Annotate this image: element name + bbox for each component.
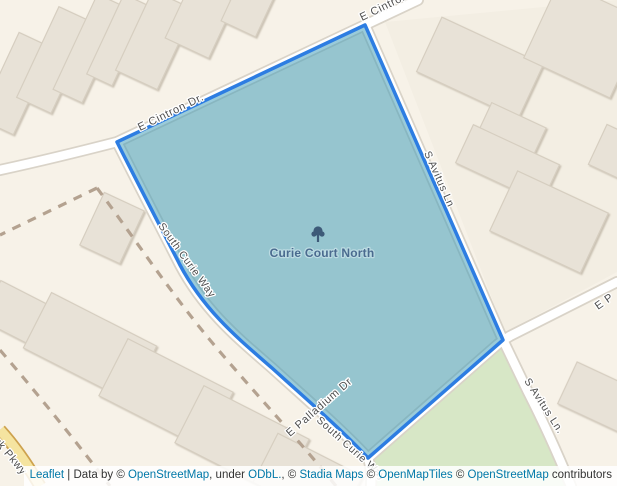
odbl-link[interactable]: ODbL. xyxy=(248,469,281,481)
attribution-text: contributors xyxy=(549,469,612,481)
openmaptiles-link[interactable]: OpenMapTiles xyxy=(378,469,452,481)
attribution-bar: Leaflet | Data by © OpenStreetMap, under… xyxy=(24,466,617,486)
attribution-text: © xyxy=(363,469,378,481)
leaflet-link[interactable]: Leaflet xyxy=(30,469,65,481)
map-tiles: Curie Court North E Cintron Dr. E Cintro… xyxy=(0,0,617,486)
place-label-curie-court-north: Curie Court North xyxy=(270,246,375,260)
attribution-text: , under xyxy=(209,469,248,481)
attribution-text: © xyxy=(453,469,468,481)
openstreetmap-link-2[interactable]: OpenStreetMap xyxy=(468,469,549,481)
attribution-text: | Data by © xyxy=(64,469,128,481)
stadia-maps-link[interactable]: Stadia Maps xyxy=(299,469,363,481)
attribution-text: , © xyxy=(281,469,299,481)
openstreetmap-link[interactable]: OpenStreetMap xyxy=(128,469,209,481)
leaflet-map-canvas[interactable]: Curie Court North E Cintron Dr. E Cintro… xyxy=(0,0,617,486)
